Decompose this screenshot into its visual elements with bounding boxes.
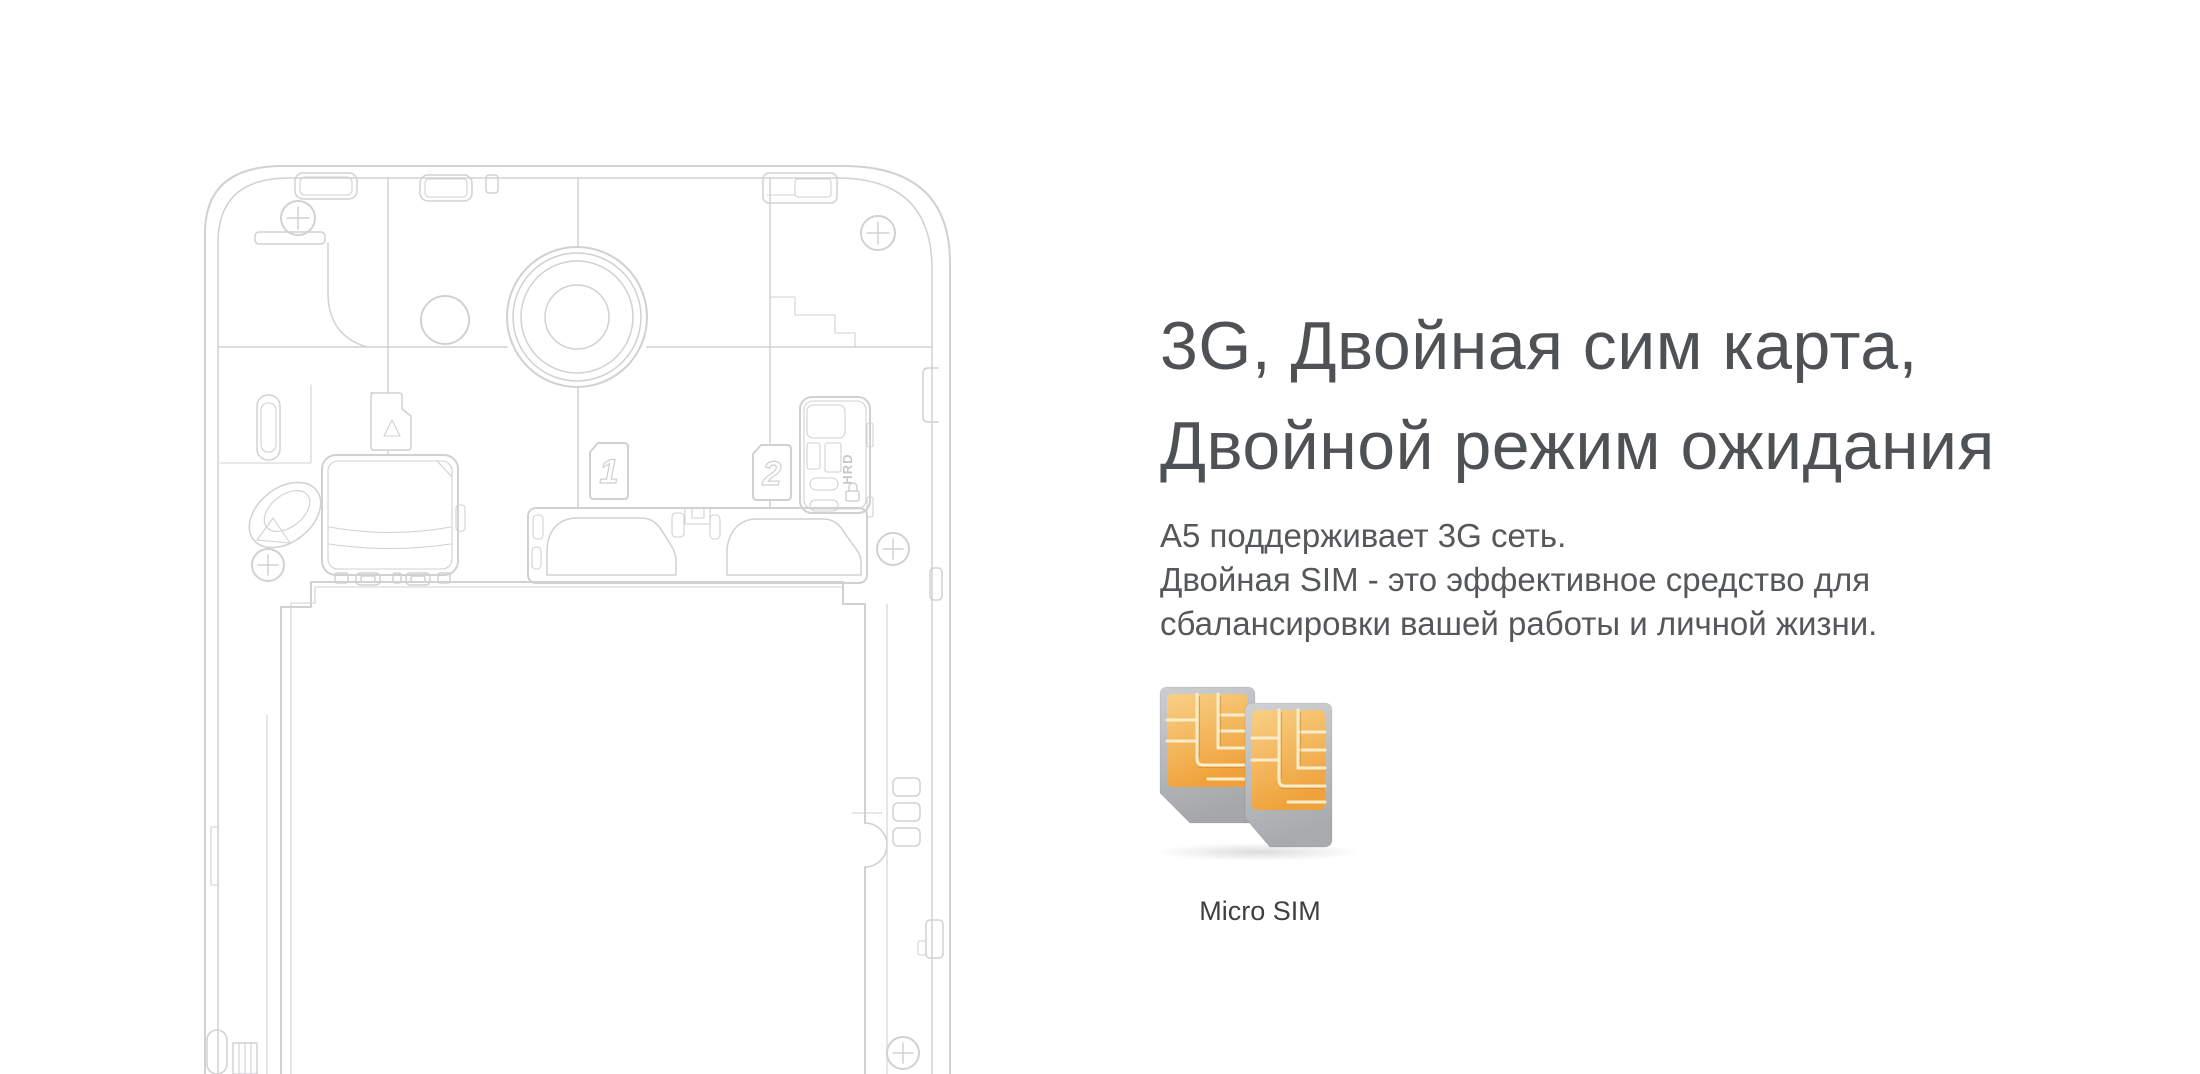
sim2-card-icon: 2 [753,445,791,500]
dual-sim-cards-icon [1150,672,1370,862]
phone-body-outline [205,166,950,1074]
product-feature-section: 1 2 HRD [0,0,2200,1074]
sim2-number: 2 [762,455,782,493]
screw-icon [861,216,895,250]
screw-icon [877,533,909,565]
sim-caption: Micro SIM [1150,896,1370,926]
screw-icon [252,549,284,581]
feature-heading-line2: Двойной режим ожидания [1160,408,1995,484]
hrd-connector-label: HRD [840,453,855,484]
screw-icon [281,201,315,235]
battery-compartment [281,582,887,1074]
sim-card-back [1160,687,1255,823]
lock-icon [846,483,859,501]
speaker-grille [233,1043,257,1074]
sim1-number: 1 [600,453,619,491]
sim-tray-1 [547,518,676,575]
feature-description-line2: Двойная SIM - это эффективное средство д… [1160,561,1870,598]
bottom-left-details [207,715,267,1074]
feature-heading-line1: 3G, Двойная сим карта, [1160,308,1918,384]
sim1-card-icon: 1 [590,443,628,499]
feature-description: A5 поддерживает 3G сеть. Двойная SIM - э… [1160,514,1877,646]
sim-card-front [1245,703,1332,847]
lanyard-loop [237,469,333,561]
feature-description-line1: A5 поддерживает 3G сеть. [1160,517,1566,554]
feature-description-line3: сбалансировки вашей работы и личной жизн… [1160,605,1877,642]
hrd-connector: HRD [800,397,873,517]
screw-icon [887,1037,919,1069]
sim-tray-2 [727,519,861,575]
phone-internals-line-art: 1 2 HRD [195,155,960,1074]
microsd-icon [371,393,411,450]
flash-ring [421,296,469,344]
side-port [257,395,280,460]
feature-heading: 3G, Двойная сим карта, Двойной режим ожи… [1160,296,1995,496]
camera-rings [507,247,647,387]
microsd-holder [322,455,465,585]
